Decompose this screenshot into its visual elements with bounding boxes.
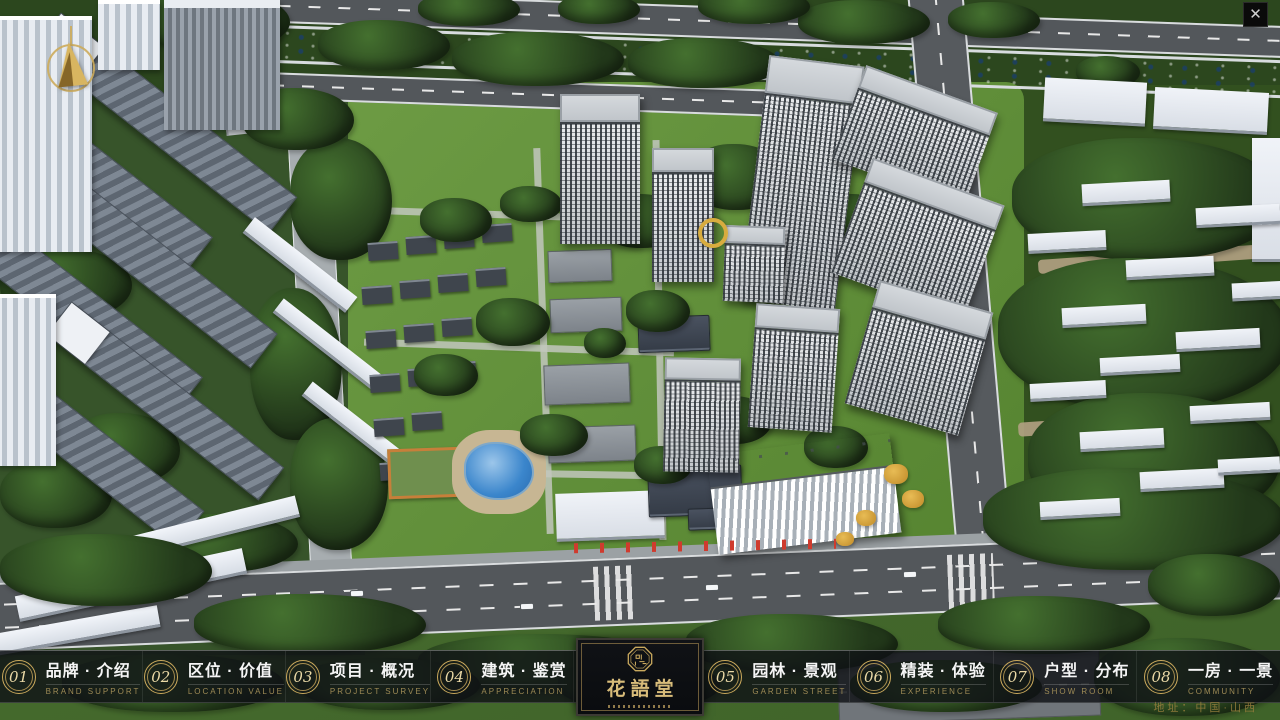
vehicle: [520, 603, 534, 610]
building: [475, 267, 506, 287]
building: [441, 317, 472, 337]
badge-number: 05: [716, 668, 735, 686]
nav-item-architecture[interactable]: 04 建筑 · 鉴赏APPRECIATION: [431, 651, 574, 702]
building: [1028, 230, 1107, 254]
logo-frame: 花語堂: [581, 643, 699, 711]
nav-group-left: 01 品牌 · 介绍BRAND SUPPORT 02 区位 · 价值LOCATI…: [0, 651, 574, 702]
tree-cluster: [420, 198, 492, 242]
tree-cluster: [584, 328, 626, 358]
tower-roof: [560, 94, 640, 124]
building: [543, 363, 630, 406]
compass-arrow: [54, 41, 88, 88]
nav-item-landscape[interactable]: 05 园林 · 景观GARDEN STREET: [706, 651, 850, 702]
tower-facade: [560, 124, 640, 244]
tree-cluster: [520, 414, 588, 456]
tree-cluster: [318, 20, 450, 70]
badge-number: 07: [1008, 668, 1027, 686]
nav-label-en: EXPERIENCE: [901, 684, 986, 696]
nav-item-roomview-badge: 08: [1144, 660, 1178, 694]
tree-cluster: [626, 290, 690, 332]
tower-roof: [665, 357, 741, 382]
vehicle: [903, 571, 917, 578]
nav-item-location-badge: 02: [144, 660, 178, 694]
tree-cluster: [476, 298, 550, 346]
tree-cluster: [500, 186, 562, 222]
nav-item-brand-intro[interactable]: 01 品牌 · 介绍BRAND SUPPORT: [0, 651, 143, 702]
building: [1252, 138, 1280, 262]
tree-cluster: [0, 534, 212, 606]
tower-roof: [725, 225, 786, 247]
badge-number: 04: [445, 668, 464, 686]
tree-cluster: [948, 2, 1040, 38]
badge-number: 06: [864, 668, 883, 686]
nav-item-landscape-badge: 05: [708, 660, 742, 694]
nav-label-zh: 品牌 · 介绍: [46, 657, 131, 681]
nav-label-en: BRAND SUPPORT: [46, 684, 141, 696]
tower-roof: [652, 148, 714, 174]
nav-label-en: GARDEN STREET: [752, 684, 846, 696]
building: [411, 411, 442, 431]
landscape-feature: [698, 218, 728, 248]
tree-cluster: [902, 490, 924, 508]
tower-facade: [748, 329, 839, 433]
compass-north-icon: [42, 26, 100, 102]
tree-cluster: [452, 32, 624, 86]
building: [373, 417, 404, 437]
logo-panel[interactable]: 花語堂: [576, 638, 704, 716]
badge-number: 08: [1151, 668, 1170, 686]
tree-cluster: [983, 468, 1280, 570]
close-button[interactable]: ✕: [1243, 2, 1268, 27]
nav-item-project-badge: 03: [286, 660, 320, 694]
building: [0, 294, 56, 466]
seal-icon: [627, 646, 653, 672]
app-window: ✕ 01 品牌 · 介绍BRAND SUPPORT 02 区位 · 价值LOCA…: [0, 0, 1280, 720]
address-text: 地址：中国·山西: [1153, 699, 1258, 715]
building: [399, 279, 430, 299]
tree-cluster: [628, 38, 780, 88]
residential-tower: [748, 303, 840, 433]
tree-cluster: [1148, 554, 1280, 616]
tree-cluster: [414, 354, 478, 396]
nav-label-en: SHOW ROOM: [1044, 684, 1129, 696]
nav-label-en: APPRECIATION: [481, 684, 566, 696]
vehicle: [705, 584, 719, 591]
masterplan-3d-render: [0, 0, 1280, 720]
nav-label-zh: 区位 · 价值: [188, 657, 273, 681]
badge-number: 01: [9, 668, 28, 686]
residential-tower: [560, 94, 640, 244]
nav-item-interior-experience[interactable]: 06 精装 · 体验EXPERIENCE: [850, 651, 994, 702]
badge-number: 03: [293, 668, 312, 686]
building: [437, 273, 468, 293]
building: [1081, 180, 1170, 207]
nav-item-floorplan-badge: 07: [1000, 660, 1034, 694]
building: [361, 285, 392, 305]
nav-item-floorplan[interactable]: 07 户型 · 分布SHOW ROOM: [994, 651, 1138, 702]
tree-cluster: [938, 596, 1150, 654]
nav-group-right: 05 园林 · 景观GARDEN STREET 06 精装 · 体验EXPERI…: [706, 651, 1280, 702]
nav-item-room-view[interactable]: 08 一房 · 一景COMMUNITY: [1137, 651, 1280, 702]
building: [403, 323, 434, 343]
residential-tower: [652, 148, 714, 282]
nav-label-zh: 园林 · 景观: [752, 657, 837, 681]
tree-cluster: [194, 594, 426, 654]
tree-cluster: [836, 532, 854, 546]
nav-label-en: COMMUNITY: [1188, 684, 1273, 696]
pool: [464, 442, 534, 500]
building: [1218, 456, 1280, 475]
nav-item-location-value[interactable]: 02 区位 · 价值LOCATION VALUE: [143, 651, 286, 702]
crosswalk: [593, 565, 635, 621]
logo-title: 花語堂: [601, 674, 678, 701]
tree-cluster: [884, 464, 908, 484]
building: [367, 241, 398, 261]
tower-facade: [723, 245, 785, 303]
tree-cluster: [856, 510, 876, 526]
nav-item-architecture-badge: 04: [437, 660, 471, 694]
building: [405, 235, 436, 255]
nav-label-en: LOCATION VALUE: [188, 684, 284, 696]
building: [98, 0, 160, 70]
building: [1043, 77, 1147, 126]
nav-label-zh: 户型 · 分布: [1044, 657, 1129, 681]
nav-label-en: PROJECT SURVEY: [330, 684, 430, 696]
building: [1232, 280, 1280, 301]
building: [164, 0, 280, 130]
nav-item-brand-badge: 01: [2, 660, 36, 694]
building: [1153, 87, 1269, 135]
badge-number: 02: [151, 668, 170, 686]
nav-label-zh: 精装 · 体验: [901, 657, 986, 681]
residential-tower: [723, 225, 786, 303]
tree-cluster: [798, 0, 930, 44]
logo-caption: [608, 705, 672, 708]
nav-label-zh: 建筑 · 鉴赏: [481, 657, 566, 681]
building: [365, 329, 396, 349]
nav-item-interior-badge: 06: [857, 660, 891, 694]
nav-label-zh: 一房 · 一景: [1188, 657, 1273, 681]
nav-label-zh: 项目 · 概况: [330, 657, 415, 681]
building: [549, 297, 622, 333]
nav-item-project-overview[interactable]: 03 项目 · 概况PROJECT SURVEY: [286, 651, 431, 702]
building: [547, 249, 612, 283]
building: [369, 373, 400, 393]
